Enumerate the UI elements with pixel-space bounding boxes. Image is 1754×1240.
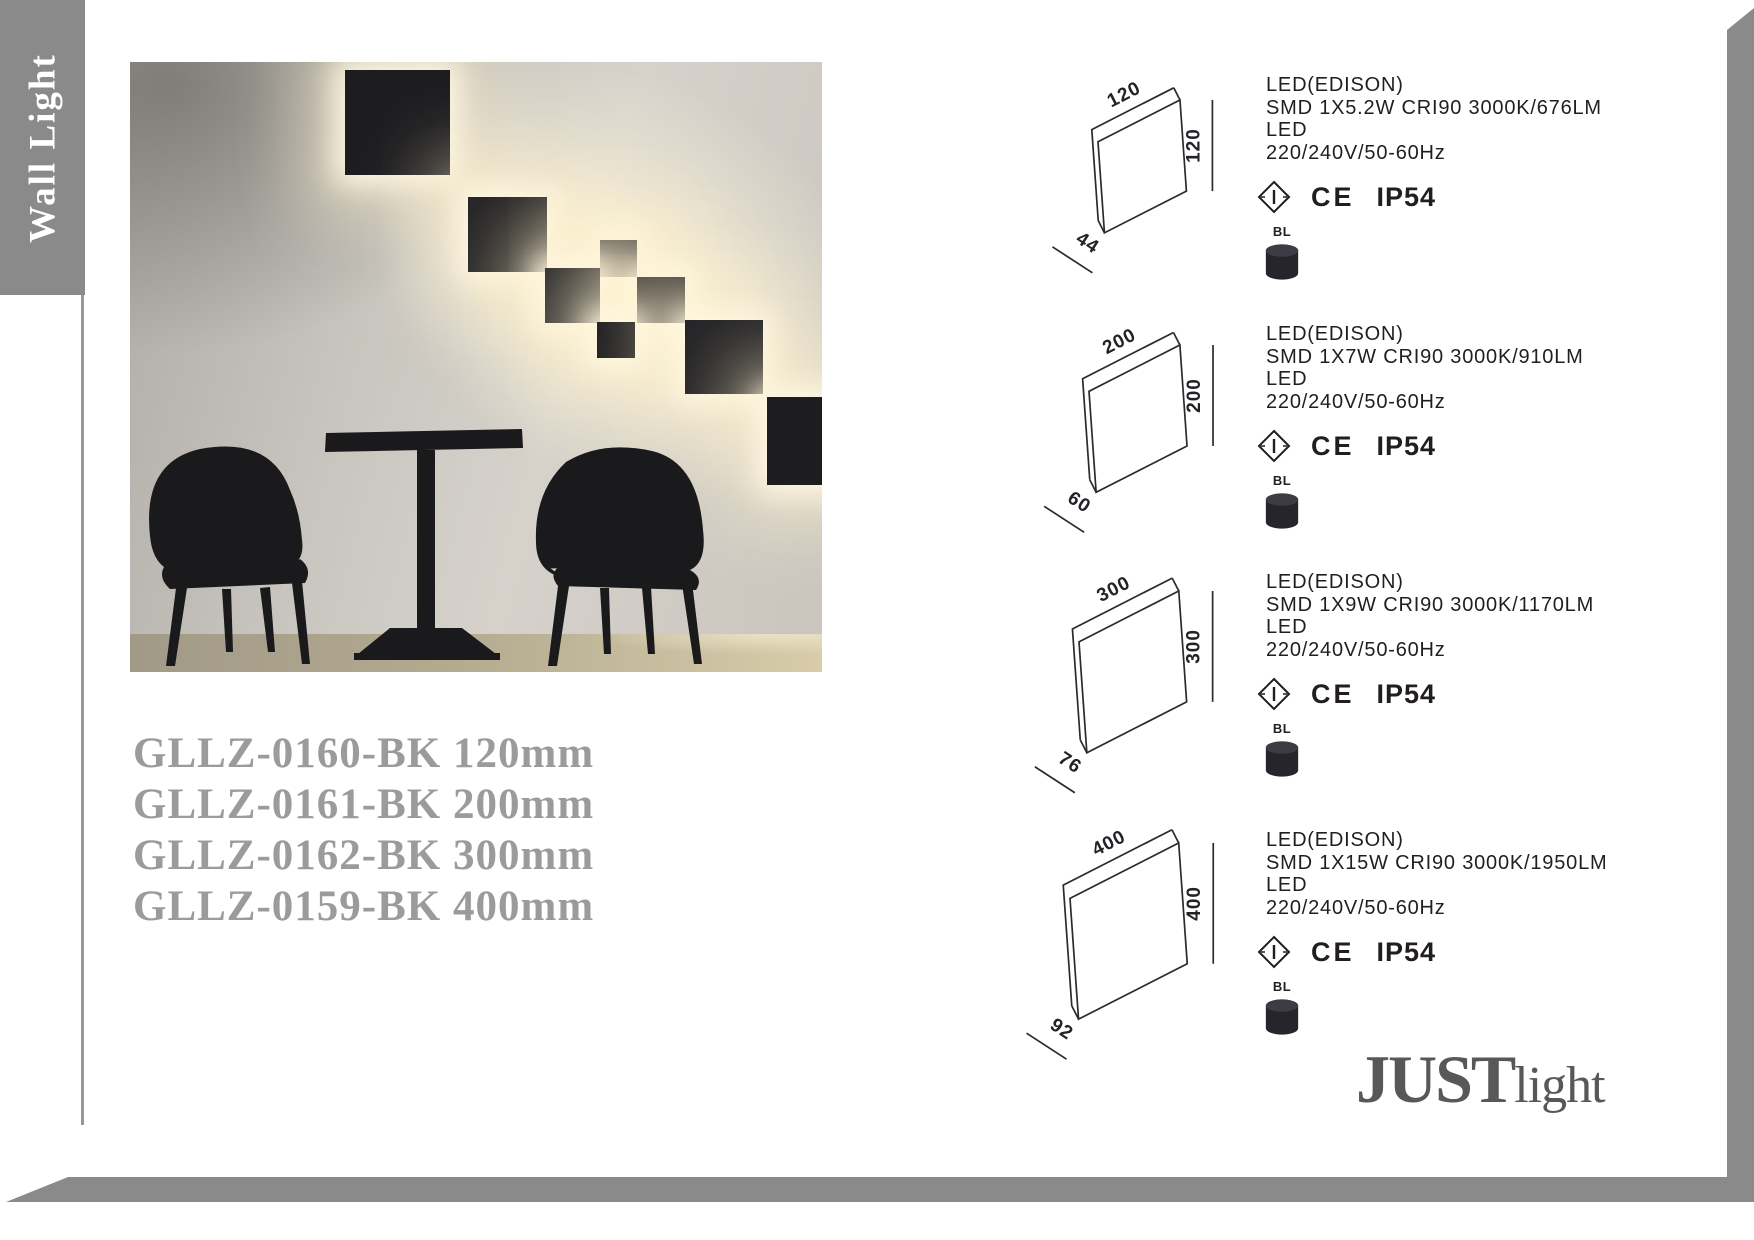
finish-block: BL	[1262, 473, 1302, 531]
product-row: 40040092 LED(EDISON) SMD 1X15W CRI90 300…	[0, 817, 1754, 1066]
svg-text:300: 300	[1094, 572, 1134, 606]
spec-line: 220/240V/50-60Hz	[1266, 897, 1607, 920]
finish-block: BL	[1262, 721, 1302, 779]
class2-diamond-icon	[1257, 677, 1291, 711]
svg-text:120: 120	[1104, 78, 1144, 112]
ip-rating: IP54	[1377, 937, 1437, 968]
svg-text:92: 92	[1046, 1014, 1077, 1044]
spec-block: LED(EDISON) SMD 1X5.2W CRI90 3000K/676LM…	[1266, 74, 1602, 164]
ip-rating: IP54	[1377, 182, 1437, 213]
cert-row: CE IP54	[1257, 180, 1436, 214]
cert-row: CE IP54	[1257, 677, 1436, 711]
svg-text:200: 200	[1099, 324, 1139, 358]
brand-logo-sub: light	[1514, 1057, 1604, 1114]
catalog-page: Wall Light	[0, 0, 1754, 1240]
spec-line: LED	[1266, 616, 1594, 639]
svg-text:44: 44	[1072, 228, 1103, 258]
svg-text:200: 200	[1184, 378, 1205, 413]
ce-mark: CE	[1311, 182, 1355, 213]
spec-line: LED(EDISON)	[1266, 323, 1584, 346]
spec-line: LED(EDISON)	[1266, 74, 1602, 97]
class2-diamond-icon	[1257, 429, 1291, 463]
panel-dimension-diagram: 20020060	[1039, 315, 1236, 547]
finish-block: BL	[1262, 979, 1302, 1037]
spec-line: LED	[1266, 119, 1602, 142]
black-cylinder-swatch	[1263, 242, 1301, 282]
spec-block: LED(EDISON) SMD 1X7W CRI90 3000K/910LM L…	[1266, 323, 1584, 413]
svg-text:60: 60	[1064, 488, 1095, 518]
svg-text:400: 400	[1184, 886, 1205, 921]
finish-block: BL	[1262, 224, 1302, 282]
finish-label: BL	[1262, 721, 1302, 736]
finish-label: BL	[1262, 979, 1302, 994]
spec-line: SMD 1X9W CRI90 3000K/1170LM	[1266, 594, 1594, 617]
svg-text:400: 400	[1089, 826, 1129, 860]
product-row: 30030076 LED(EDISON) SMD 1X9W CRI90 3000…	[0, 559, 1754, 808]
spec-line: LED	[1266, 368, 1584, 391]
ip-rating: IP54	[1377, 431, 1437, 462]
cert-row: CE IP54	[1257, 429, 1436, 463]
spec-block: LED(EDISON) SMD 1X9W CRI90 3000K/1170LM …	[1266, 571, 1594, 661]
svg-text:76: 76	[1054, 748, 1085, 778]
spec-line: 220/240V/50-60Hz	[1266, 639, 1594, 662]
spec-line: 220/240V/50-60Hz	[1266, 391, 1584, 414]
black-cylinder-swatch	[1263, 997, 1301, 1037]
product-row: 20020060 LED(EDISON) SMD 1X7W CRI90 3000…	[0, 311, 1754, 560]
spec-line: LED	[1266, 874, 1607, 897]
panel-dimension-diagram: 12012044	[1048, 70, 1235, 287]
class2-diamond-icon	[1257, 935, 1291, 969]
class2-diamond-icon	[1257, 180, 1291, 214]
finish-label: BL	[1262, 224, 1302, 239]
spec-line: SMD 1X5.2W CRI90 3000K/676LM	[1266, 97, 1602, 120]
spec-line: SMD 1X7W CRI90 3000K/910LM	[1266, 346, 1584, 369]
panel-dimension-diagram: 30030076	[1029, 561, 1235, 807]
spec-line: 220/240V/50-60Hz	[1266, 142, 1602, 165]
brand-logo: JUSTlight	[1356, 1040, 1605, 1119]
cert-row: CE IP54	[1257, 935, 1436, 969]
black-cylinder-swatch	[1263, 491, 1301, 531]
ce-mark: CE	[1311, 431, 1355, 462]
ce-mark: CE	[1311, 937, 1355, 968]
ip-rating: IP54	[1377, 679, 1437, 710]
bottom-bar	[0, 1177, 1754, 1202]
spec-line: SMD 1X15W CRI90 3000K/1950LM	[1266, 852, 1607, 875]
spec-line: LED(EDISON)	[1266, 571, 1594, 594]
ce-mark: CE	[1311, 679, 1355, 710]
svg-text:120: 120	[1183, 128, 1204, 163]
product-row: 12012044 LED(EDISON) SMD 1X5.2W CRI90 30…	[0, 62, 1754, 311]
brand-logo-main: JUST	[1356, 1041, 1514, 1117]
spec-block: LED(EDISON) SMD 1X15W CRI90 3000K/1950LM…	[1266, 829, 1607, 919]
panel-dimension-diagram: 40040092	[1020, 813, 1236, 1074]
black-cylinder-swatch	[1263, 739, 1301, 779]
finish-label: BL	[1262, 473, 1302, 488]
svg-text:300: 300	[1184, 629, 1205, 664]
spec-line: LED(EDISON)	[1266, 829, 1607, 852]
right-bar	[1727, 8, 1754, 1202]
